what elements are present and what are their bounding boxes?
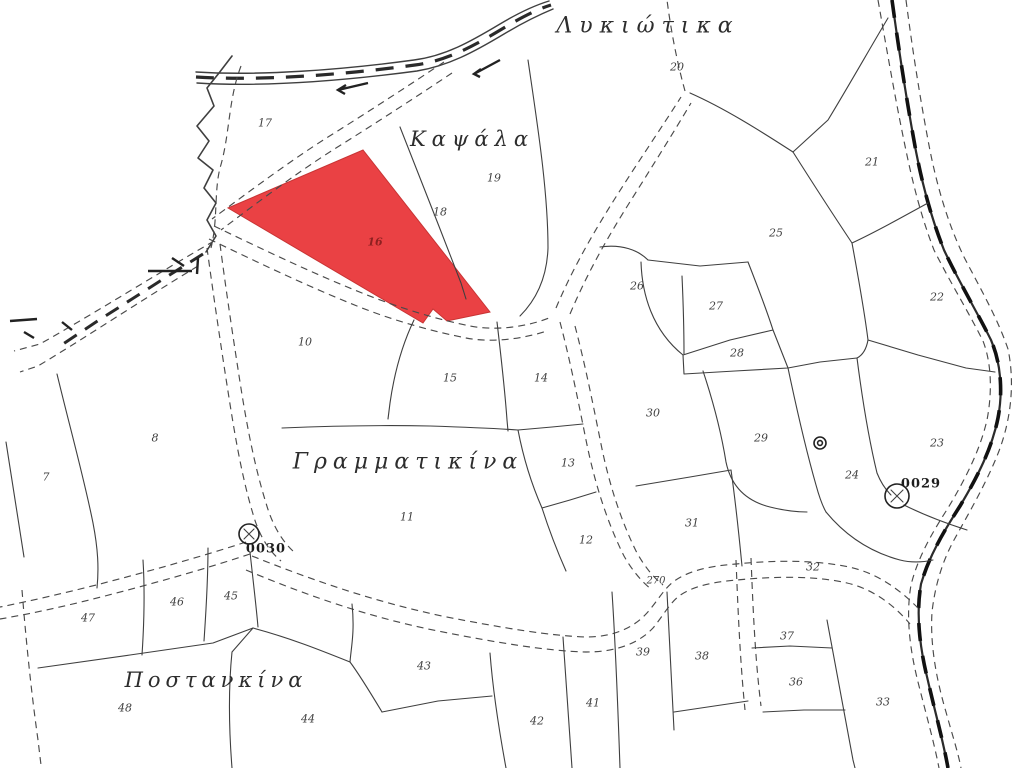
boundary-zigzag: [10, 56, 241, 372]
well-symbol: [814, 437, 826, 449]
survey-marker-0029: [885, 484, 909, 508]
cadastral-map: ΛυκιώτικαΚαψάλαΓραμματικίναΠοστανκίνα201…: [0, 0, 1024, 768]
parcel-boundaries: [6, 18, 995, 768]
main-road: [196, 1, 553, 94]
cadastral-map-canvas: [0, 0, 1024, 768]
survey-marker-0030: [239, 524, 259, 544]
highlighted-parcel[interactable]: [228, 150, 490, 323]
survey-markers: [239, 437, 909, 544]
roads-dashed: [0, 0, 918, 765]
river: [878, 0, 1011, 768]
